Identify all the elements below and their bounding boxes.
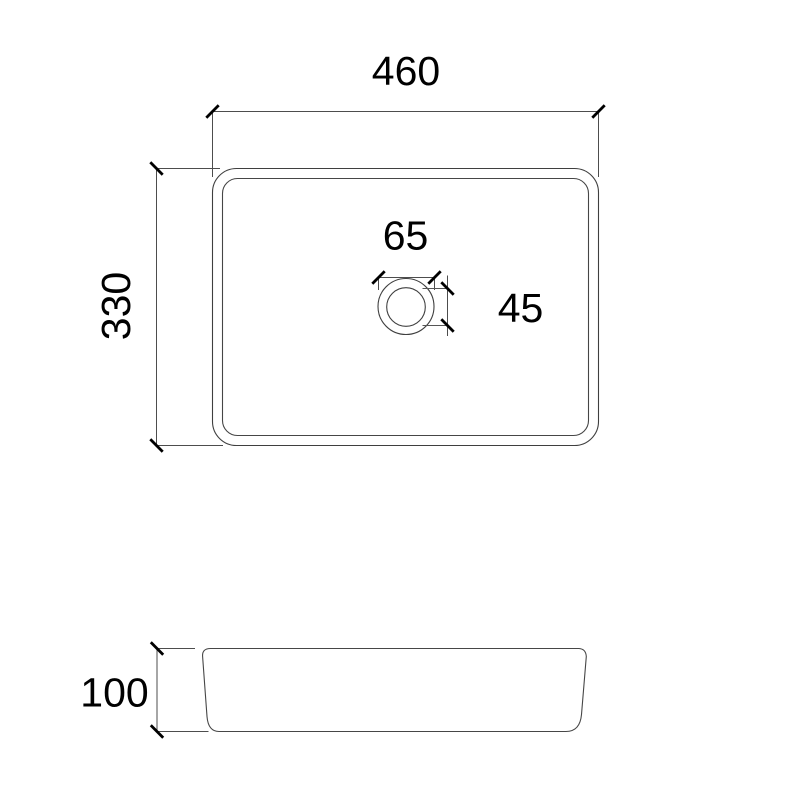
svg-text:100: 100 — [80, 670, 148, 716]
svg-text:45: 45 — [498, 285, 544, 331]
svg-text:330: 330 — [93, 272, 139, 340]
svg-text:460: 460 — [372, 48, 440, 94]
svg-text:65: 65 — [383, 213, 429, 259]
